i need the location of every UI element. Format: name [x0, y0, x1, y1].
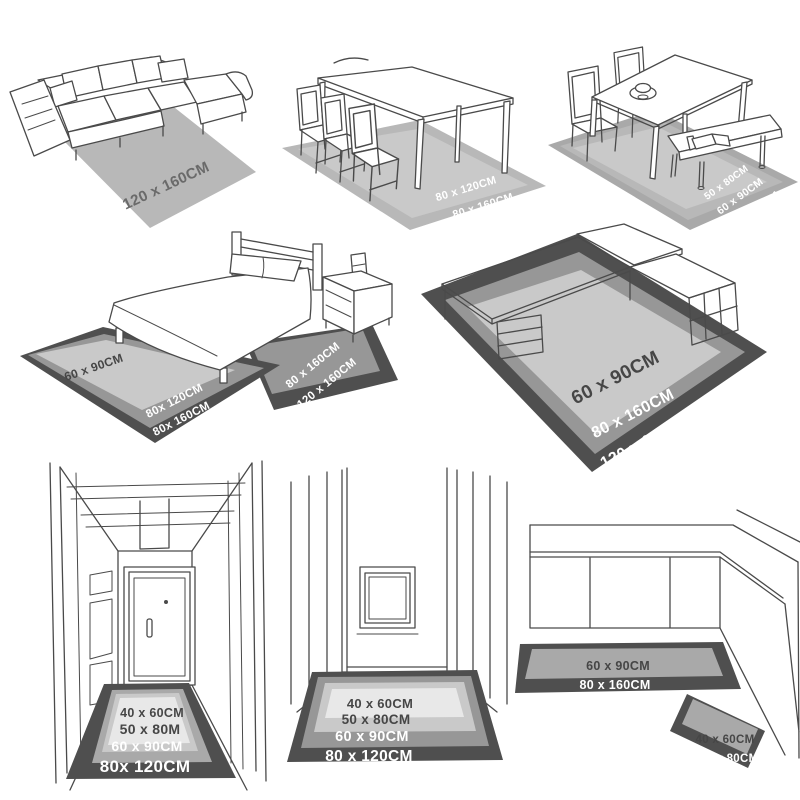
window-icon — [357, 567, 418, 634]
kitchen-counter-illustration — [530, 510, 800, 758]
scene-entryway: 40 x 60CM 50 x 80CM 60 x 90CM 80 x 120CM — [285, 460, 515, 790]
rug-size-label: 50 x 80CM — [700, 753, 759, 765]
scene-dining-room: 80 x 120CM 80 x 160CM — [270, 40, 550, 235]
rug-size-label: 80 x 120CM — [325, 748, 412, 765]
scene-hallway: 40 x 60CM 50 x 80M 60 x 90CM 80x 120CM — [40, 455, 270, 790]
peephole-icon — [164, 600, 168, 604]
door-illustration — [124, 567, 195, 685]
scene-bedroom: 60 x 90CM 80x 120CM 80x 160CM 80 x 160CM… — [20, 228, 400, 444]
rug-size-label: 60 x 90CM — [586, 659, 650, 673]
rug-size-label: 80x 120CM — [100, 757, 191, 776]
scene-living-room: 120 x 160CM — [0, 50, 270, 230]
scene-kitchen: 60 x 90CM 80 x 160CM 40 x 60CM 50 x 80CM — [515, 500, 800, 800]
rug-size-label: 60 x 90CM — [111, 738, 182, 754]
rug-size-label: 40 x 60CM — [696, 734, 755, 746]
rug-size-label: 50 x 80M — [120, 721, 181, 737]
rug-size-label: 40 x 60CM — [120, 706, 184, 720]
rug-size-label: 80 x 160CM — [579, 678, 650, 692]
rug-size-label: 50 x 80CM — [342, 712, 411, 727]
nightstand-illustration — [323, 253, 392, 342]
rug-size-label: 40 x 60CM — [347, 696, 413, 711]
scene-dining-bench: 50 x 80CM 60 x 90CM 80x 120CM — [540, 30, 800, 245]
scene-office: 60 x 90CM 80 x 160CM 120 x 160CM — [405, 222, 800, 472]
rug-size-label: 60 x 90CM — [335, 729, 409, 745]
